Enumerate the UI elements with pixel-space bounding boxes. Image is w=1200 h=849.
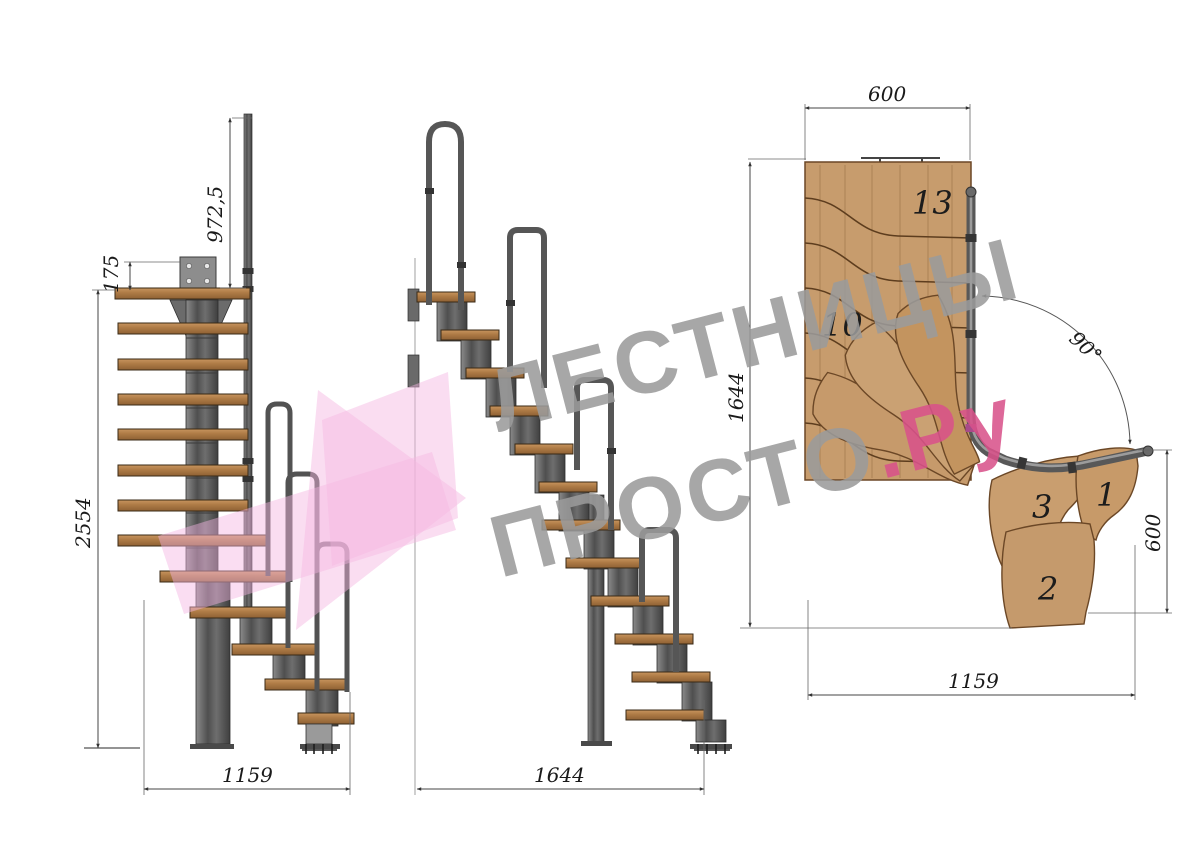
staircase-technical-drawing: 972,5 175 2554 1159 — [0, 0, 1200, 849]
dim-front-length: 1644 — [534, 763, 585, 787]
dim-side-width: 1159 — [222, 763, 273, 787]
dim-plan-top-width: 600 — [868, 82, 906, 106]
dim-plan-width: 1159 — [948, 669, 999, 693]
dim-turn-angle: 90° — [1065, 326, 1107, 368]
tread-label-3: 3 — [1032, 488, 1052, 526]
mounting-plate — [180, 257, 216, 290]
watermark-text: ЛЕСТНИЦЫ ПРОСТО.Ру — [478, 218, 1030, 596]
dim-total-height: 2554 — [71, 497, 95, 549]
dim-top-offset: 175 — [99, 255, 123, 293]
lower-flight — [232, 618, 354, 754]
dim-plan-corner-depth: 600 — [1141, 514, 1165, 552]
drawing-canvas: 972,5 175 2554 1159 — [0, 0, 1200, 849]
side-view: 972,5 175 2554 1159 — [71, 114, 354, 795]
tread-label-2: 2 — [1037, 570, 1058, 608]
dim-handrail-height: 972,5 — [203, 186, 227, 243]
tread-label-1: 1 — [1096, 476, 1116, 514]
column-base-flange — [190, 744, 234, 749]
tread-label-13: 13 — [912, 184, 953, 222]
